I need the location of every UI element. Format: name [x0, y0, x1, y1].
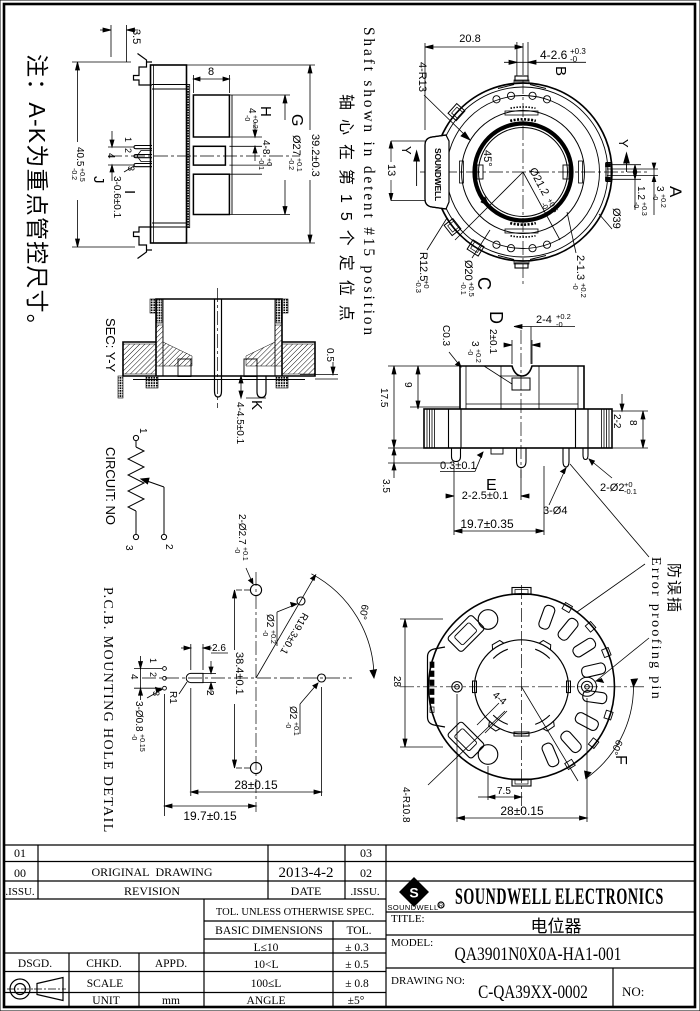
svg-text:17.5: 17.5 — [378, 388, 389, 408]
svg-text:20.8: 20.8 — [459, 33, 480, 45]
svg-text:ORIGINAL DRAWING: ORIGINAL DRAWING — [91, 865, 212, 879]
svg-text:2-2: 2-2 — [611, 414, 622, 429]
svg-text:-0: -0 — [261, 630, 268, 636]
svg-text:2: 2 — [163, 544, 174, 550]
svg-text:TITLE:: TITLE: — [391, 913, 425, 925]
svg-text:防误插: 防误插 — [665, 563, 682, 614]
svg-text:I: I — [121, 190, 138, 194]
svg-text:Ø20: Ø20 — [462, 260, 474, 281]
svg-text:B: B — [552, 66, 569, 76]
svg-text:3-Ø0.8: 3-Ø0.8 — [133, 701, 144, 732]
svg-text:+0.1: +0.1 — [295, 158, 302, 172]
svg-text:.ISSU.: .ISSU. — [350, 886, 380, 898]
svg-text:2013-4-2: 2013-4-2 — [279, 865, 334, 881]
svg-text:3.5: 3.5 — [130, 29, 142, 44]
svg-text:1: 1 — [137, 428, 148, 434]
svg-text:F: F — [612, 755, 629, 765]
svg-text:Ø2: Ø2 — [264, 614, 275, 628]
svg-text:Ø27: Ø27 — [290, 135, 302, 156]
svg-text:0.3±0.1: 0.3±0.1 — [440, 460, 477, 472]
svg-text:Y: Y — [616, 139, 631, 148]
svg-text:MODEL:: MODEL: — [391, 937, 433, 949]
svg-text:45°: 45° — [481, 150, 493, 167]
svg-text:+0.2: +0.2 — [251, 115, 258, 129]
svg-text:00: 00 — [14, 866, 26, 880]
svg-text:Ø39: Ø39 — [610, 208, 622, 229]
svg-text:.ISSU.: .ISSU. — [5, 886, 35, 898]
svg-text:APPD.: APPD. — [155, 958, 187, 970]
svg-text:C: C — [474, 277, 494, 290]
svg-text:3.5: 3.5 — [380, 479, 391, 493]
svg-text:0.5: 0.5 — [324, 348, 335, 362]
svg-text:-0.3: -0.3 — [414, 280, 423, 293]
svg-text:3: 3 — [654, 186, 665, 192]
svg-text:-0: -0 — [284, 722, 291, 728]
svg-text:+0.1: +0.1 — [292, 722, 299, 736]
svg-text:S: S — [409, 885, 418, 901]
svg-text:01: 01 — [14, 846, 26, 860]
svg-text:19.7±0.15: 19.7±0.15 — [183, 809, 237, 823]
svg-text:-0.2: -0.2 — [287, 158, 294, 170]
svg-text:8: 8 — [208, 66, 214, 78]
svg-text:CIRCUIT: NO: CIRCUIT: NO — [103, 447, 118, 525]
svg-text:8: 8 — [627, 420, 638, 426]
svg-text:02: 02 — [360, 866, 372, 880]
svg-text:2-4: 2-4 — [536, 314, 552, 326]
svg-text:+0.2: +0.2 — [659, 194, 666, 208]
svg-text:4-R10.8: 4-R10.8 — [400, 787, 411, 823]
svg-text:-0.2: -0.2 — [70, 168, 77, 180]
svg-text:+0: +0 — [265, 158, 272, 166]
svg-text:-0: -0 — [466, 349, 473, 355]
svg-text:-0.1: -0.1 — [257, 158, 264, 170]
svg-text:+0.2: +0.2 — [474, 349, 481, 363]
svg-text:10<L: 10<L — [253, 959, 278, 971]
svg-text:CHKD.: CHKD. — [86, 958, 122, 970]
svg-text:±5°: ±5° — [348, 995, 365, 1007]
svg-text:Ø2: Ø2 — [287, 706, 298, 720]
svg-text:2-2.5±0.1: 2-2.5±0.1 — [462, 490, 508, 502]
svg-text:C0.3: C0.3 — [440, 325, 451, 347]
svg-text:C-QA39XX-0002: C-QA39XX-0002 — [478, 981, 588, 1002]
svg-text:mm: mm — [162, 995, 180, 1007]
svg-text:3-Ø4: 3-Ø4 — [543, 505, 567, 517]
svg-text:Shaft shown in detent #15 posi: Shaft shown in detent #15 position — [360, 27, 377, 338]
svg-text:03: 03 — [360, 846, 372, 860]
svg-text:ANGLE: ANGLE — [247, 995, 286, 1007]
svg-text:19.7±0.35: 19.7±0.35 — [460, 517, 514, 531]
svg-text:电位器: 电位器 — [531, 917, 582, 936]
svg-text:注：A-K为重点管控尺寸。: 注：A-K为重点管控尺寸。 — [24, 54, 50, 338]
svg-text:4: 4 — [246, 108, 257, 114]
svg-text:2: 2 — [123, 148, 133, 153]
svg-text:DRAWING NO:: DRAWING NO: — [391, 975, 465, 987]
svg-text:-0: -0 — [556, 320, 563, 329]
svg-text:BASIC DIMENSIONS: BASIC DIMENSIONS — [215, 925, 323, 937]
svg-text:7.5: 7.5 — [497, 786, 511, 797]
svg-text:1.2: 1.2 — [635, 186, 646, 200]
svg-text:UNIT: UNIT — [92, 995, 119, 1007]
svg-text:-0: -0 — [651, 194, 658, 200]
svg-text:-0.1: -0.1 — [624, 487, 637, 496]
svg-text:+0.15: +0.15 — [138, 734, 145, 752]
svg-text:1: 1 — [123, 137, 133, 142]
svg-text:R: R — [439, 904, 443, 910]
svg-text:SCALE: SCALE — [87, 978, 123, 990]
svg-text:Y: Y — [399, 146, 414, 155]
svg-text:D: D — [486, 311, 506, 324]
svg-text:± 0.5: ± 0.5 — [345, 959, 369, 971]
svg-text:4: 4 — [105, 153, 116, 159]
svg-text:28±0.15: 28±0.15 — [234, 778, 278, 792]
svg-text:+0.1: +0.1 — [241, 547, 248, 561]
svg-text:2: 2 — [148, 672, 158, 677]
svg-text:DSGD.: DSGD. — [18, 958, 52, 970]
svg-text:NO:: NO: — [622, 984, 644, 999]
svg-text:+0.3: +0.3 — [640, 202, 647, 216]
svg-text:3-0.6±0.1: 3-0.6±0.1 — [111, 176, 122, 219]
svg-text:A: A — [666, 186, 685, 198]
svg-text:G: G — [288, 114, 305, 126]
svg-text:9: 9 — [402, 382, 413, 388]
svg-text:Error proofing pin: Error proofing pin — [648, 557, 663, 701]
svg-text:SOUNDWELL: SOUNDWELL — [387, 903, 438, 912]
svg-text:-0: -0 — [243, 115, 250, 121]
svg-text:± 0.3: ± 0.3 — [345, 942, 369, 954]
svg-text:± 0.8: ± 0.8 — [345, 978, 369, 990]
svg-text:SEC: Y-Y: SEC: Y-Y — [103, 318, 118, 373]
svg-text:2±0.1: 2±0.1 — [487, 329, 498, 354]
svg-text:TOL.: TOL. — [346, 925, 371, 937]
svg-text:4-4.5±0.1: 4-4.5±0.1 — [234, 402, 245, 445]
svg-text:DATE: DATE — [291, 884, 322, 898]
svg-text:4: 4 — [128, 674, 139, 680]
svg-text:2-Ø2.7: 2-Ø2.7 — [236, 514, 247, 545]
svg-text:TOL. UNLESS OTHERWISE SPEC.: TOL. UNLESS OTHERWISE SPEC. — [216, 907, 374, 918]
svg-text:4-8: 4-8 — [260, 140, 271, 155]
svg-text:QA3901N0X0A-HA1-001: QA3901N0X0A-HA1-001 — [455, 944, 622, 965]
svg-text:+0.5: +0.5 — [78, 168, 85, 182]
svg-text:J: J — [90, 176, 107, 184]
svg-text:-0: -0 — [632, 202, 639, 208]
svg-text:H: H — [257, 106, 274, 117]
svg-text:3: 3 — [123, 545, 134, 551]
svg-text:2-Ø2: 2-Ø2 — [600, 482, 624, 494]
svg-text:-0: -0 — [571, 283, 580, 290]
svg-text:2-1.3: 2-1.3 — [574, 255, 586, 280]
svg-text:28±0.15: 28±0.15 — [500, 804, 544, 818]
svg-text:R1: R1 — [167, 691, 178, 704]
svg-text:4-2.6: 4-2.6 — [540, 48, 568, 62]
svg-text:4-R13: 4-R13 — [416, 62, 428, 92]
svg-text:-0: -0 — [130, 734, 137, 740]
svg-text:1: 1 — [148, 658, 158, 663]
svg-text:K: K — [248, 400, 265, 410]
svg-text:28: 28 — [391, 676, 402, 688]
svg-text:-0.1: -0.1 — [459, 282, 468, 295]
svg-text:L≤10: L≤10 — [254, 942, 279, 954]
svg-text:-0: -0 — [570, 55, 578, 64]
svg-text:+0.2: +0.2 — [269, 630, 276, 644]
svg-text:38.4±0.1: 38.4±0.1 — [233, 652, 245, 695]
svg-text:轴心在第15个定位点: 轴心在第15个定位点 — [337, 94, 355, 330]
svg-text:P.C.B. MOUNTING HOLE DETAIL: P.C.B. MOUNTING HOLE DETAIL — [100, 587, 115, 834]
svg-text:2.6: 2.6 — [212, 643, 226, 654]
svg-text:39.2±0.3: 39.2±0.3 — [309, 134, 321, 177]
svg-text:REVISION: REVISION — [124, 884, 180, 898]
svg-text:40.5: 40.5 — [74, 147, 85, 167]
svg-text:3: 3 — [469, 341, 480, 347]
svg-text:2: 2 — [204, 690, 215, 696]
svg-text:R12.5: R12.5 — [417, 252, 429, 281]
svg-text:SOUNDWELL: SOUNDWELL — [433, 148, 443, 201]
svg-text:13: 13 — [385, 164, 397, 176]
svg-text:100≤L: 100≤L — [251, 978, 282, 990]
svg-text:SOUNDWELL ELECTRONICS: SOUNDWELL ELECTRONICS — [455, 885, 664, 910]
svg-text:-0: -0 — [233, 547, 240, 553]
